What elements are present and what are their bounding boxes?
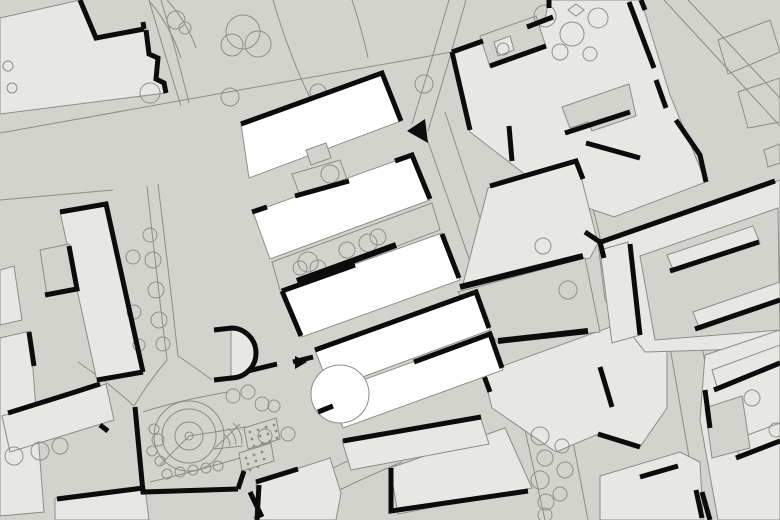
complex-circle-annex xyxy=(311,365,369,423)
site-plan-canvas xyxy=(0,0,780,520)
site-plan xyxy=(0,0,780,520)
